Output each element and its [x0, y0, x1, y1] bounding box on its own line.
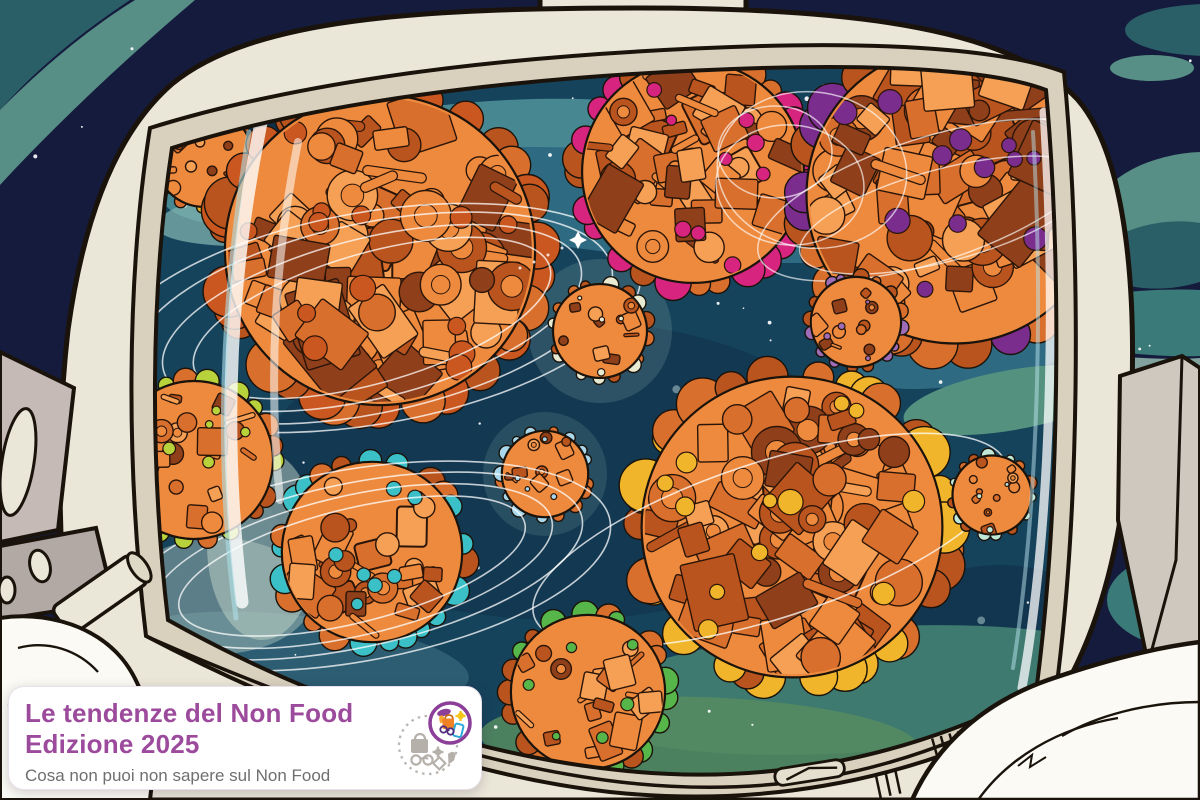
title-card[interactable]: Le tendenze del Non FoodEdizione 2025 Co…: [8, 686, 482, 790]
non-food-logo: [395, 698, 475, 778]
cone-icon: [448, 752, 456, 764]
cover-illustration: [0, 0, 1200, 800]
cover: Le tendenze del Non FoodEdizione 2025 Co…: [0, 0, 1200, 800]
